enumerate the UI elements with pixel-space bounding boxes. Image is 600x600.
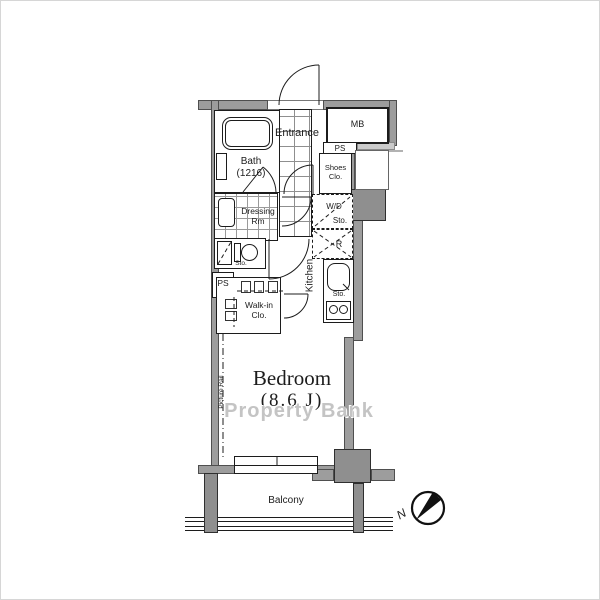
walkin-label-line2: Clo. — [229, 311, 289, 321]
bath-label: Bath (1216) — [221, 156, 281, 179]
kitchen-label: Kitchen — [305, 236, 318, 316]
dressing-label-line2: Rm — [228, 217, 288, 227]
ps-top-label-text: PS — [335, 144, 346, 153]
sink-drain-line — [343, 284, 349, 290]
toilet-storage-label: Sto. — [229, 260, 253, 267]
kitchen-storage-label: Sto. — [329, 291, 349, 299]
wd-storage-text: Sto. — [333, 216, 347, 225]
dressing-room-label: Dressing Rm — [228, 207, 288, 227]
balcony-label: Balcony — [246, 495, 326, 507]
refrigerator-label: R — [331, 239, 347, 249]
linework-overlay — [1, 1, 600, 600]
floorplan-canvas: Entrance MB PS Shoes Clo. Bath (1216) Dr… — [0, 0, 600, 600]
entrance-label: Entrance — [266, 127, 328, 140]
wd-storage-label: Sto. — [327, 216, 353, 225]
ps-top-label: PS — [323, 144, 357, 153]
wd-label-text: W/D — [326, 202, 342, 211]
kitchen-door-arc — [269, 239, 309, 279]
refrigerator-text: R — [336, 239, 343, 249]
walkin-closet-label: Walk-in Clo. — [229, 301, 289, 321]
entrance-label-text: Entrance — [275, 127, 319, 139]
wd-label: W/D — [319, 202, 349, 211]
watermark-text: Property Bank — [224, 400, 374, 422]
kitchen-storage-text: Sto. — [333, 291, 345, 298]
mb-label: MB — [326, 119, 389, 129]
shoes-closet-label: Shoes Clo. — [319, 164, 352, 181]
kitchen-label-text: Kitchen — [305, 259, 316, 292]
watermark: Property Bank — [221, 400, 377, 423]
bedroom-label-line1: Bedroom — [216, 366, 368, 390]
mb-label-text: MB — [351, 119, 365, 129]
shoes-label-line2: Clo. — [319, 173, 352, 182]
entrance-door-arc — [279, 65, 319, 105]
toilet-storage-text: Sto. — [235, 260, 247, 267]
ps-left-label-text: PS — [217, 278, 228, 288]
bath-label-line2: (1216) — [221, 168, 281, 180]
bath-label-line1: Bath — [221, 156, 281, 168]
compass-icon — [404, 485, 452, 533]
storage-door-arc — [284, 165, 313, 194]
ps-left-label: PS — [212, 279, 234, 289]
balcony-label-text: Balcony — [268, 495, 304, 506]
